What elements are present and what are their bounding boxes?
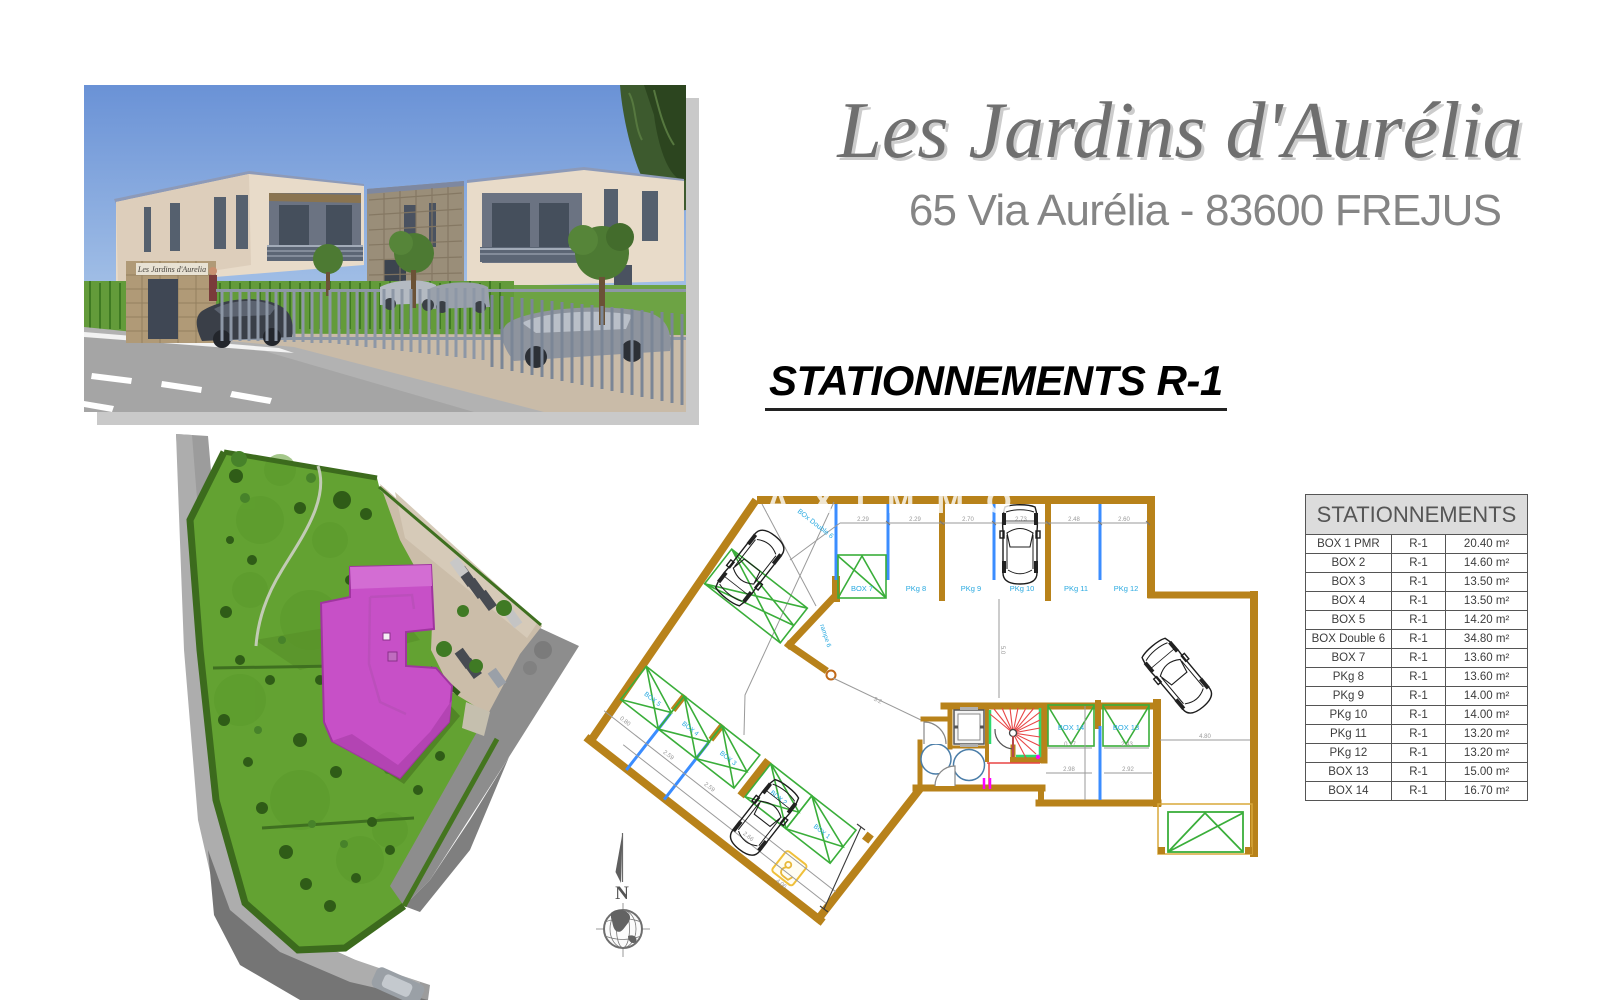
svg-text:BOX 14: BOX 14: [1058, 723, 1084, 732]
svg-text:BOX 7: BOX 7: [851, 584, 873, 593]
svg-text:2.92: 2.92: [1122, 767, 1134, 773]
svg-text:PKg 12: PKg 12: [1114, 584, 1139, 593]
svg-text:2.60: 2.60: [1118, 517, 1130, 523]
svg-text:PKg 8: PKg 8: [906, 584, 926, 593]
svg-text:AXIMMO: AXIMMO: [766, 483, 1034, 520]
svg-text:5.0: 5.0: [999, 646, 1005, 655]
svg-text:2.48: 2.48: [1068, 517, 1080, 523]
svg-text:2.98: 2.98: [1063, 767, 1075, 773]
svg-text:2.43: 2.43: [1121, 742, 1133, 748]
svg-text:PKg 9: PKg 9: [961, 584, 981, 593]
svg-text:0.77: 0.77: [1064, 742, 1076, 748]
svg-text:PKg 10: PKg 10: [1010, 584, 1035, 593]
svg-text:Les Jardins d'Aurelia: Les Jardins d'Aurelia: [137, 265, 206, 274]
svg-text:N: N: [615, 883, 629, 904]
svg-text:4.80: 4.80: [1199, 734, 1211, 740]
svg-text:PKg 11: PKg 11: [1064, 584, 1088, 593]
svg-text:BOX 13: BOX 13: [1113, 723, 1139, 732]
